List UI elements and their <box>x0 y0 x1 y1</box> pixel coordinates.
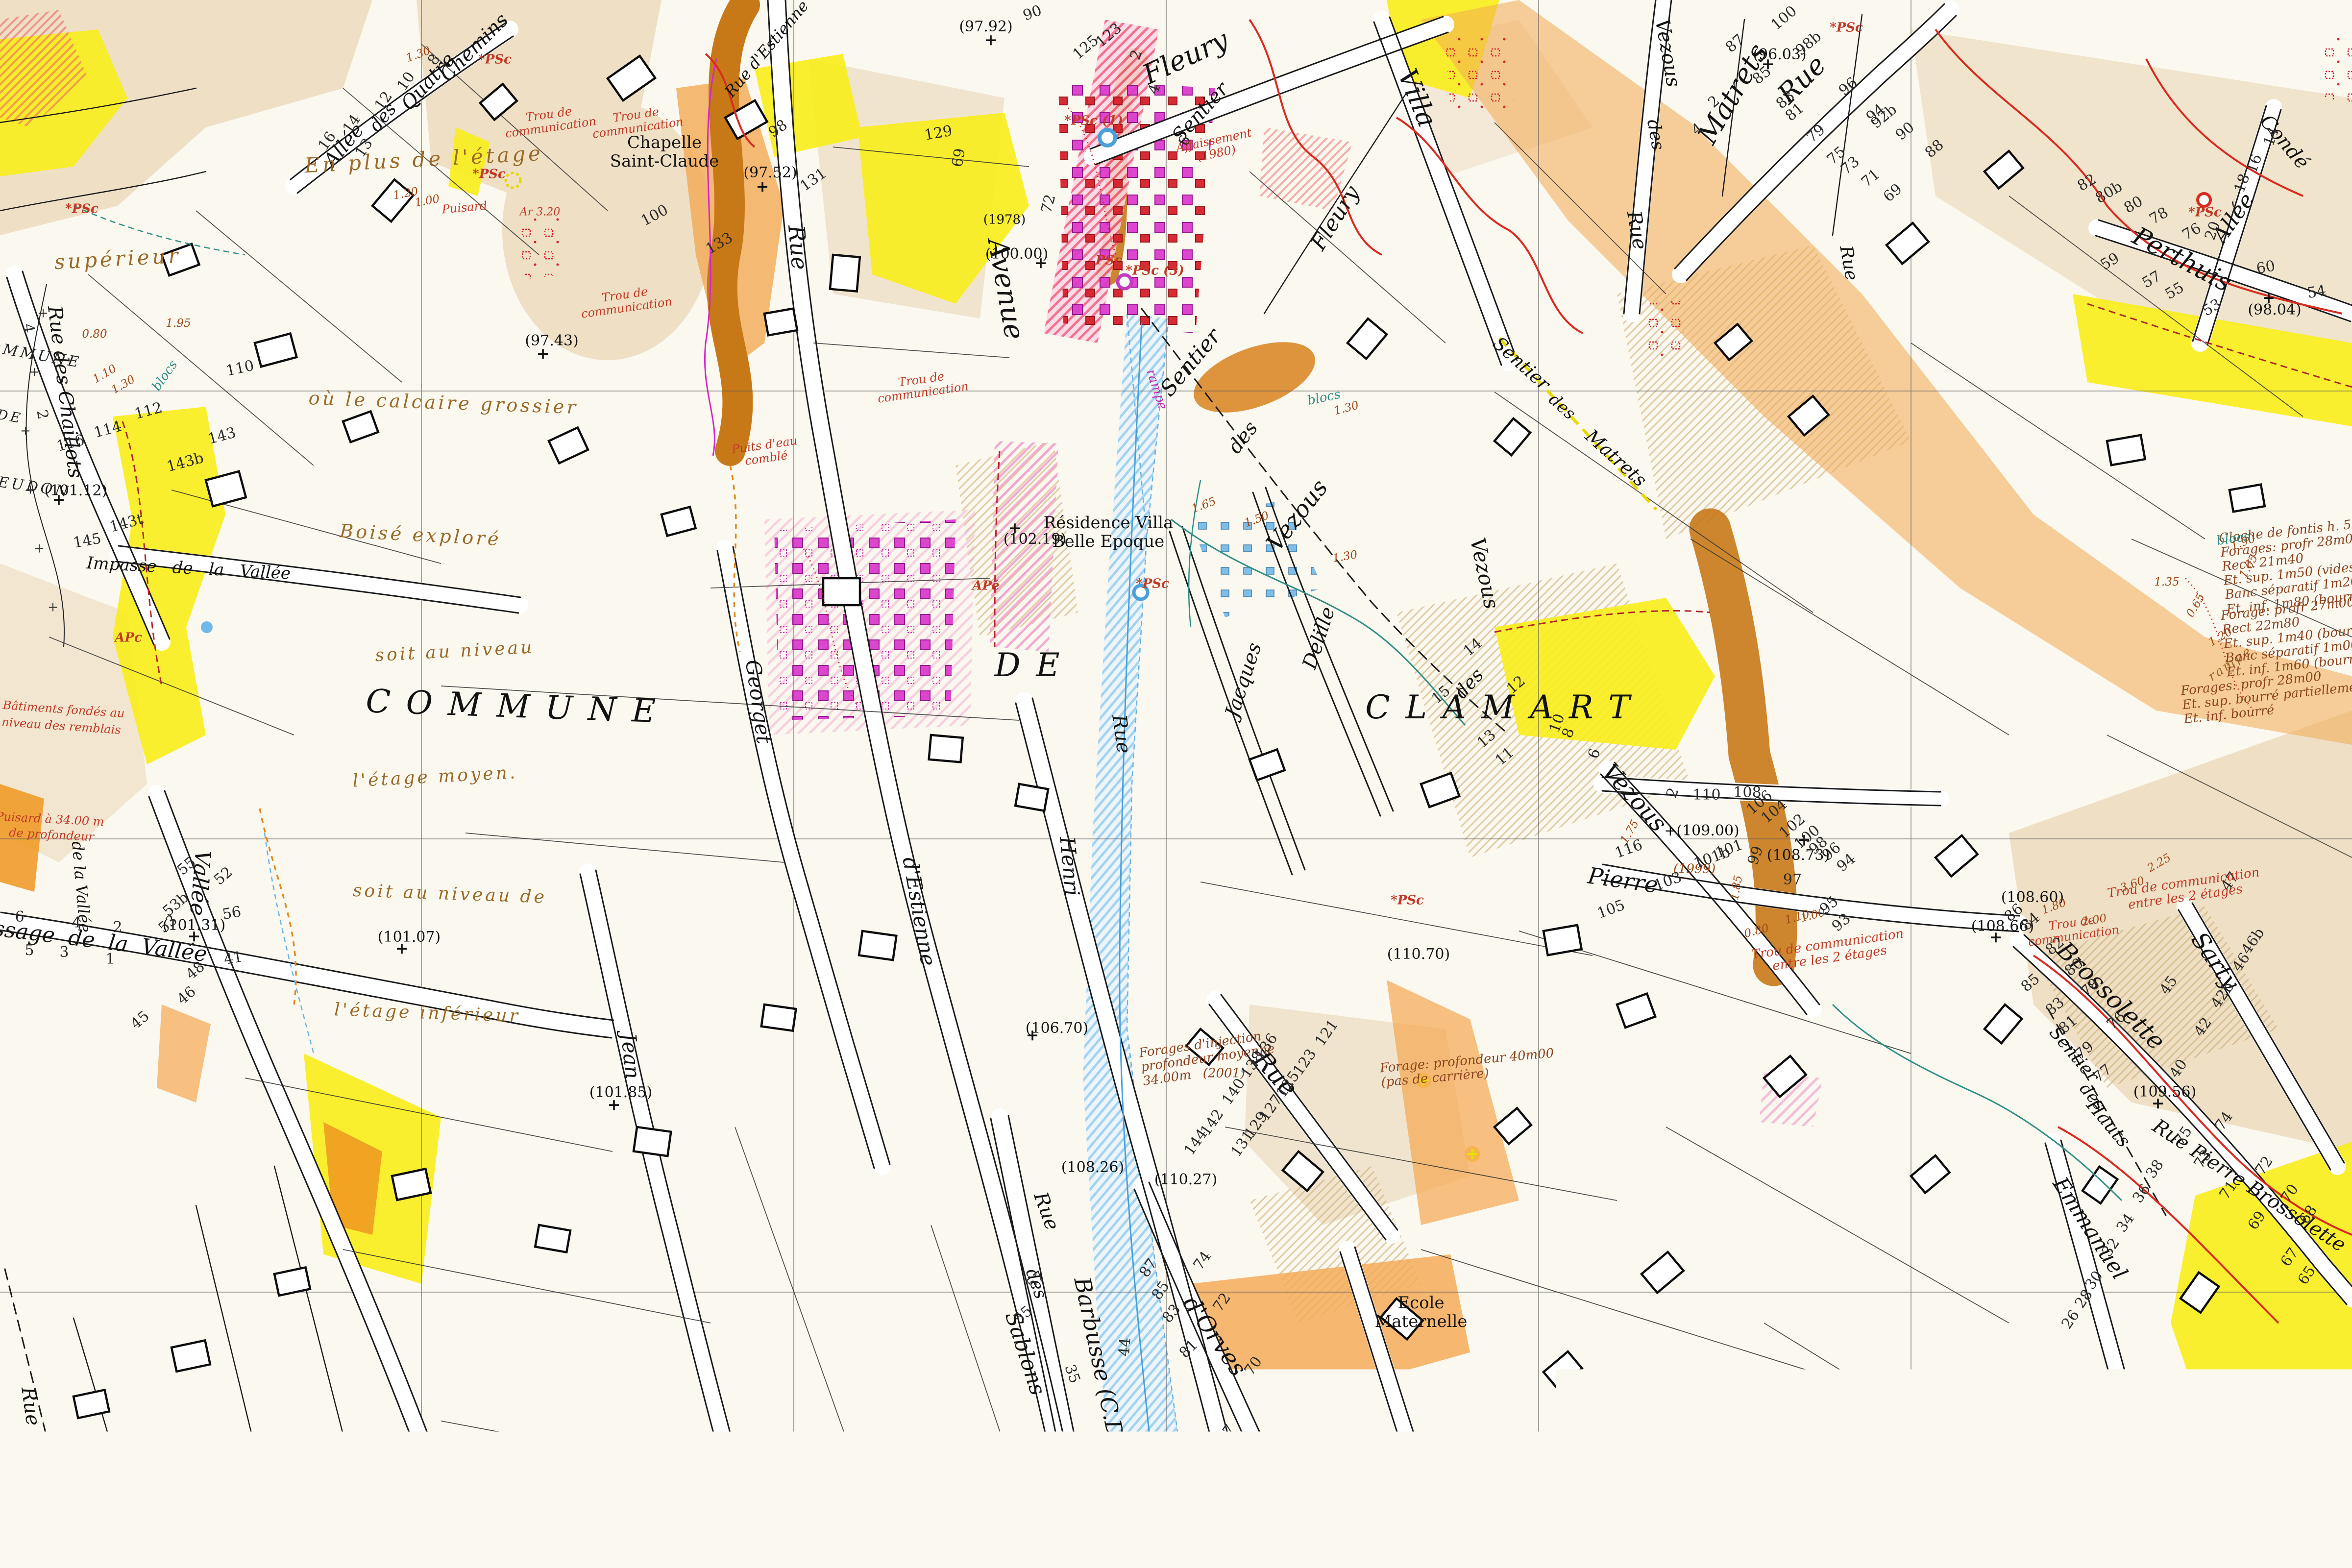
map-label: *PSc <box>472 167 506 181</box>
map-label: + <box>1989 929 2003 946</box>
map-label: 60 <box>2255 258 2276 277</box>
map-label: 3 <box>59 944 69 961</box>
map-label: Pierre <box>1586 863 1660 898</box>
map-label: +(109.00) <box>1664 823 1739 839</box>
map-label: 16 <box>2244 152 2266 175</box>
map-label: 100 <box>1768 3 1800 34</box>
map-label: 8 <box>1559 726 1578 740</box>
map-label: + <box>984 31 998 49</box>
map-label: 1.50 <box>1243 510 1271 530</box>
map-label: (1978) <box>983 213 1026 227</box>
map-label: 74 <box>1190 1249 1214 1274</box>
map-label: APé <box>972 579 1000 593</box>
map-label: Vezous <box>1651 17 1684 89</box>
map-label: + <box>25 483 36 497</box>
map-label: Vezous <box>1262 475 1333 556</box>
map-label: 46 <box>174 983 199 1008</box>
map-label: des <box>1643 118 1668 152</box>
map-label: *PSc <box>478 52 512 67</box>
map-label: 80 <box>2121 193 2146 217</box>
map-label: + <box>20 424 31 438</box>
map-label: 40 <box>2166 1056 2190 1081</box>
map-label: 105 <box>1595 897 1627 922</box>
map-label: 67 <box>2278 1245 2302 1270</box>
map-label: Trou de communication entre les 2 étages <box>1751 927 1907 976</box>
map-label: *PSc <box>2188 205 2222 220</box>
map-label: Trou de communication <box>875 367 970 405</box>
map-label: 99 <box>1745 844 1767 867</box>
map-label: 2 <box>1127 48 1146 62</box>
map-label: + <box>395 940 409 957</box>
map-label: 1.85 <box>1729 875 1745 902</box>
map-label: 69 <box>1881 181 1906 205</box>
map-label: 4 <box>72 915 81 931</box>
map-label: 145 <box>72 530 102 551</box>
map-label: 26 <box>2058 1307 2082 1332</box>
map-label: 133 <box>703 229 735 258</box>
map-label: Rue d'Estienne <box>722 0 812 100</box>
map-label: 56 <box>221 904 242 923</box>
map-label: Rue <box>290 1516 317 1558</box>
map-label: 2 <box>1664 785 1682 800</box>
map-label: 65 <box>2295 1263 2319 1288</box>
map-label: APc <box>115 631 142 645</box>
map-label: 88 <box>1922 137 1947 161</box>
map-label: 69 <box>2245 1208 2269 1233</box>
map-label: 1.30 <box>109 373 137 397</box>
map-label: 110 <box>1692 787 1720 804</box>
map-label: 11 <box>1493 744 1518 769</box>
map-label: 6 <box>1585 746 1604 760</box>
map-label: 101 <box>1713 836 1745 861</box>
map-label: des <box>1224 417 1262 458</box>
map-label: *PSc <box>1136 577 1169 591</box>
map-label: 53 <box>2200 296 2224 319</box>
map-label: + <box>608 1096 621 1114</box>
map-label: Impasse de la Vallée <box>86 554 291 583</box>
map-label: (110.27) <box>1154 1172 1217 1188</box>
map-label: + <box>2262 289 2276 307</box>
map-label: (101.85) <box>589 1084 652 1101</box>
map-label: 1.95 <box>166 318 191 330</box>
map-label: + <box>1008 519 1022 537</box>
map-label: + <box>537 345 550 363</box>
map-label: + <box>48 600 58 614</box>
map-label: soit au niveau de <box>352 881 547 907</box>
map-label: 85 <box>1149 1278 1173 1303</box>
map-label: *PSc <box>1391 893 1424 907</box>
map-label: 1.35 <box>2154 576 2179 589</box>
map-label: Rue <box>1622 209 1651 251</box>
map-label: + <box>188 928 201 945</box>
map-label: Forage: profondeur 40m00 (pas de carrièr… <box>1379 1046 1556 1090</box>
map-label: (97.43) <box>525 333 578 349</box>
map-label: 45 <box>128 1008 153 1032</box>
map-label: + <box>2152 1095 2165 1112</box>
map-label: 54 <box>2306 282 2327 302</box>
map-label: *PSc (1) <box>1064 114 1123 128</box>
map-label: 44 <box>1116 1337 1134 1357</box>
map-label: 38 <box>2143 1157 2167 1182</box>
map-label: CLAMART <box>1365 689 1645 726</box>
map-label: d'Estienne <box>898 855 940 968</box>
map-label: supérieur <box>54 244 182 274</box>
map-label: Delille <box>1299 604 1340 672</box>
map-label: Henri <box>1055 835 1083 897</box>
map-label: Boisé exploré <box>339 520 502 550</box>
map-label: Sentier <box>1489 333 1554 394</box>
map-label: 71 <box>1859 166 1884 191</box>
map-label: 79 <box>1804 122 1829 146</box>
map-label: 114 <box>92 418 123 441</box>
map-label: Hauts <box>2082 1095 2135 1151</box>
map-label: Rue <box>88 1475 115 1517</box>
map-label: 1.30 <box>1332 549 1359 565</box>
map-label: 5 <box>24 942 34 959</box>
map-label: 57 <box>2139 268 2164 292</box>
map-label: 59 <box>2098 250 2122 273</box>
map-label: 97 <box>1783 872 1802 888</box>
map-label: Forage: profr 27m00 Rect 22m80 Et. sup. … <box>2220 594 2352 680</box>
map-label: 18 <box>2231 171 2254 195</box>
map-label: + <box>29 365 40 379</box>
map-label: (101.07) <box>378 929 441 946</box>
map-label: (110.70) <box>1387 946 1450 963</box>
map-label: Ar 3.20 <box>520 207 560 219</box>
map-label: 85 <box>2018 971 2043 995</box>
map-label: + <box>34 541 45 556</box>
map-label: 110 <box>225 358 256 380</box>
map-label: Rue <box>1836 244 1861 282</box>
cadastral-map-clamart: COMMUNEDECLAMARTCOMMUNEDEMEUDONChapelle … <box>0 0 2352 1568</box>
map-label: 143 <box>206 424 238 447</box>
map-label: de profondeur <box>9 826 95 844</box>
map-label: 1.65 <box>1190 495 1218 516</box>
map-label: Chapelle Saint-Claude <box>610 133 719 171</box>
map-label: 76 <box>2180 220 2204 244</box>
map-label: Puisard <box>441 199 488 217</box>
map-label: 45 <box>2156 973 2180 998</box>
map-label: 100 <box>638 202 671 230</box>
map-label: PSc <box>1096 253 1122 268</box>
map-label: l'étage inférieur <box>334 1000 520 1027</box>
map-label: + <box>756 178 769 196</box>
map-label: 90 <box>1021 2 1044 24</box>
map-label: + <box>1034 254 1048 272</box>
map-label: 33 <box>1067 1436 1089 1459</box>
map-label: 143b <box>165 450 206 475</box>
map-label: Jacques <box>1221 640 1266 720</box>
map-label: Sentier <box>1156 324 1226 401</box>
map-label: 4 <box>20 322 37 335</box>
map-label: 36 <box>2130 1181 2154 1206</box>
map-label: Jean <box>617 1032 645 1080</box>
map-labels-layer: COMMUNEDECLAMARTCOMMUNEDEMEUDONChapelle … <box>0 0 2352 1568</box>
map-label: Trou de communication <box>503 101 597 140</box>
map-label: 72 <box>1038 193 1059 215</box>
map-label: 1 <box>105 951 115 968</box>
map-label: 14 <box>1461 635 1486 660</box>
map-label: 98 <box>766 117 791 141</box>
map-label: Ecole Maternelle <box>1374 1294 1467 1331</box>
map-label: 0.80 <box>82 328 107 341</box>
map-label: 121 <box>1312 1017 1342 1049</box>
map-label: 2.25 <box>2145 852 2173 875</box>
map-label: 55 <box>2162 279 2187 303</box>
map-label: 2 <box>33 409 51 421</box>
map-label: Georget <box>741 658 776 745</box>
map-label: 90 <box>1893 119 1918 144</box>
map-label: 34 <box>2113 1211 2137 1236</box>
map-label: COMMUNE <box>365 683 671 730</box>
map-label: Chemins <box>436 9 513 86</box>
map-label: Rue <box>783 224 812 271</box>
map-label: 93 <box>1829 910 1854 935</box>
map-label: 129 <box>923 122 954 144</box>
map-label: Trou de communication <box>579 282 673 320</box>
map-label: 116 <box>1613 836 1644 861</box>
map-label: où le calcaire grossier <box>308 388 579 418</box>
map-label: Rue <box>1029 1189 1063 1233</box>
map-label: Vezous <box>1466 536 1504 611</box>
map-label: blocs <box>149 358 180 394</box>
map-label: des <box>1545 390 1579 423</box>
map-label: 35 <box>1061 1362 1083 1385</box>
map-label: 143t <box>108 511 145 536</box>
map-label: Villa <box>1392 65 1442 131</box>
map-label: + <box>1026 1027 1039 1044</box>
map-label: 77 <box>1214 1422 1238 1447</box>
map-label: + <box>38 306 49 320</box>
map-label: Rue <box>2125 1487 2167 1514</box>
map-label: (108.26) <box>1061 1159 1124 1176</box>
map-label: 112 <box>133 399 164 422</box>
map-label: 0.80 <box>1743 922 1770 941</box>
map-label: 0.65 <box>2184 591 2208 619</box>
map-label: 52 <box>211 864 236 888</box>
map-label: 6 <box>15 909 24 926</box>
map-label: soit au niveau <box>375 637 535 665</box>
map-label: Rue <box>17 1385 44 1427</box>
map-label: 83 <box>2043 994 2068 1019</box>
map-label: 131 <box>797 165 830 195</box>
map-label: (97.52) <box>743 165 797 181</box>
map-label: Matrets <box>1581 425 1651 491</box>
map-label: 41 <box>222 949 244 968</box>
map-label: 42 <box>2191 1015 2215 1040</box>
map-label: 72 <box>2252 1153 2276 1178</box>
map-label: 78 <box>2147 204 2171 228</box>
map-label: Puits d'eau comblé <box>731 434 800 469</box>
map-label: 13 <box>1474 727 1499 751</box>
map-label: Rue <box>1107 713 1134 755</box>
map-label: *PSc (3) <box>1126 264 1184 278</box>
map-label: 81 <box>1176 1337 1201 1362</box>
map-label: l'étage moyen. <box>352 763 518 791</box>
map-label: 74 <box>2212 1109 2236 1134</box>
map-label: (109.56) <box>2133 1084 2196 1101</box>
map-label: 96 <box>1836 74 1861 99</box>
map-label: DE <box>995 647 1075 684</box>
map-label: *PSc <box>1830 21 1863 35</box>
map-label: 87 <box>1136 1256 1160 1281</box>
map-label: *PSc <box>65 202 98 216</box>
map-label: + <box>52 491 66 509</box>
map-label: 2 <box>113 919 122 936</box>
map-label: 69 <box>949 147 969 168</box>
map-label: Fleury <box>1306 182 1365 255</box>
